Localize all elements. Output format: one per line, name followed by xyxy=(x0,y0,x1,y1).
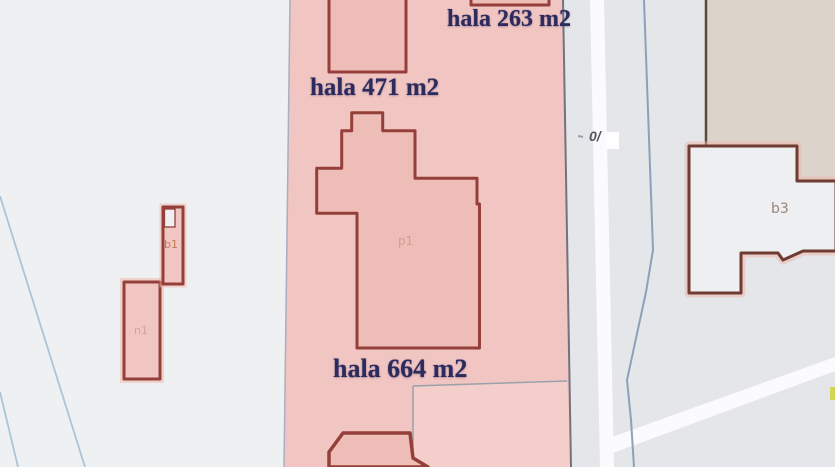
road-label-white-patch xyxy=(606,132,619,149)
building-code-p1: p1 xyxy=(398,235,413,247)
building-hala-263 xyxy=(471,0,549,5)
field-boundary-line-left-2 xyxy=(0,392,18,467)
small-dash-mark xyxy=(578,136,583,137)
building-b1-notch xyxy=(165,209,176,227)
cadastral-map: hala 263 m2 hala 471 m2 hala 664 m2 p1 b… xyxy=(0,0,835,467)
field-boundary-line-left-1 xyxy=(0,196,85,467)
road-number-label: 0/ xyxy=(589,129,601,143)
yellow-edge-marker xyxy=(830,387,835,400)
building-code-b3: b3 xyxy=(771,202,789,216)
area-label-hala-471: hala 471 m2 xyxy=(310,75,439,100)
building-hala-471 xyxy=(329,0,406,72)
area-label-hala-664: hala 664 m2 xyxy=(333,356,467,382)
building-code-n1: n1 xyxy=(134,325,148,336)
map-canvas xyxy=(0,0,835,467)
parcel-sub-light xyxy=(413,381,571,467)
building-code-b1: b1 xyxy=(164,239,178,250)
area-label-hala-263: hala 263 m2 xyxy=(447,7,571,31)
